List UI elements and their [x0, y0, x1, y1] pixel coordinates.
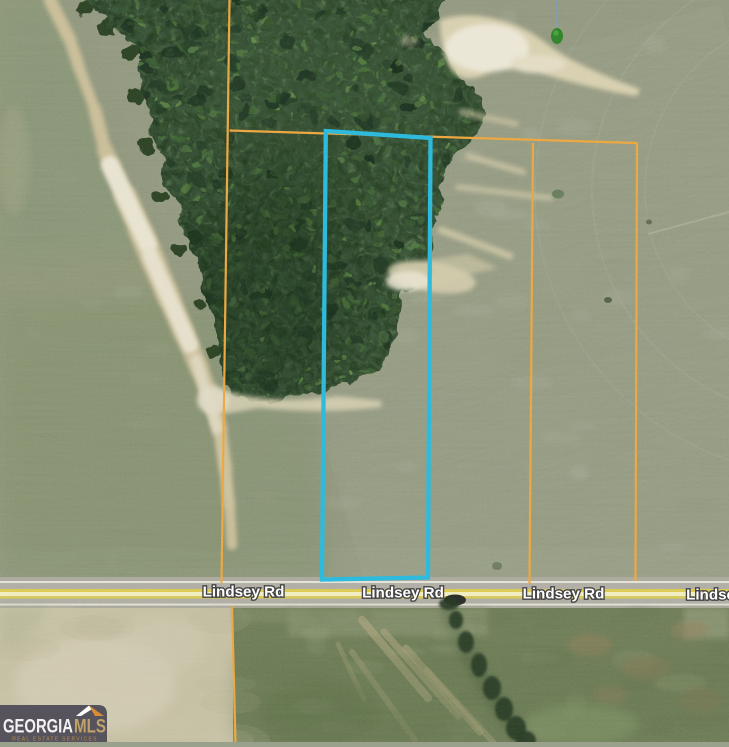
svg-text:GEORGIA: GEORGIA: [3, 716, 73, 738]
svg-text:REAL ESTATE SERVICES: REAL ESTATE SERVICES: [12, 737, 98, 743]
svg-text:MLS: MLS: [74, 716, 106, 738]
